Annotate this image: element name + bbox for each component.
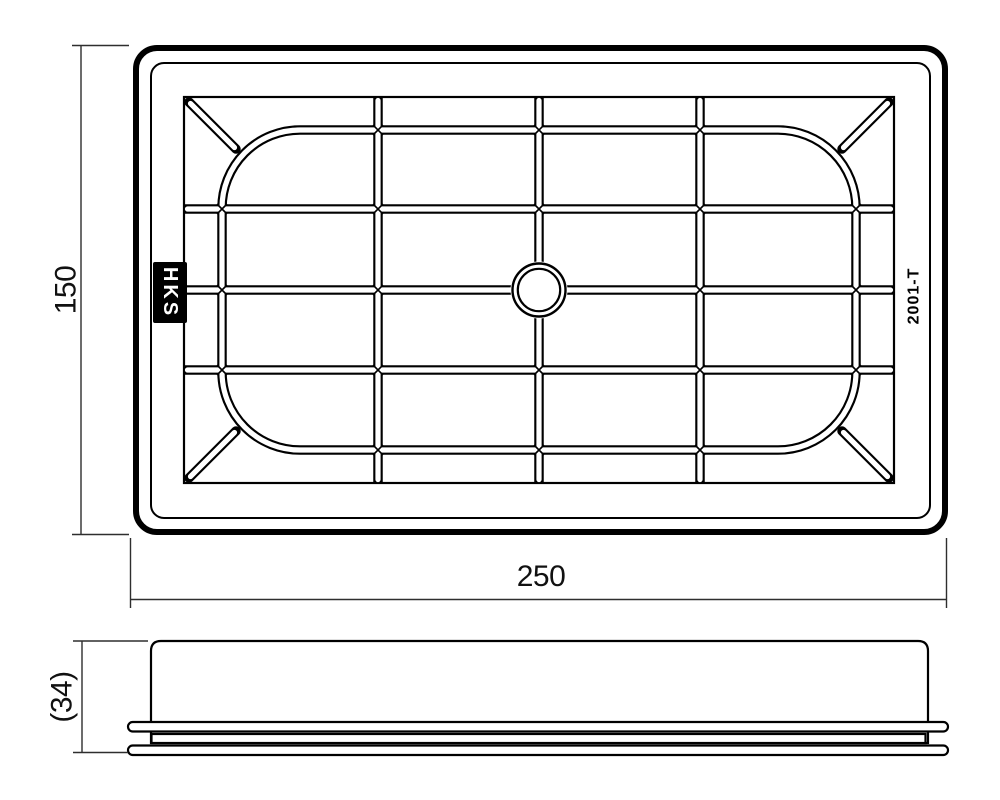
logo-text: HKS — [159, 267, 181, 318]
center-hole-inner-ring — [518, 269, 560, 311]
dimension-width-label: 250 — [517, 560, 566, 593]
part-number-text: 2001-T — [906, 268, 923, 325]
logo-badge: HKS — [153, 262, 187, 323]
dimension-depth-lines — [73, 641, 148, 753]
dimension-height-label: 150 — [50, 266, 83, 315]
center-hole — [511, 262, 568, 319]
dimension-height: 150 — [50, 45, 130, 535]
side-view — [128, 641, 948, 755]
dimension-depth: (34) — [46, 641, 149, 753]
side-gasket-middle-layer — [152, 734, 926, 743]
top-view: HKS 2001-T — [136, 48, 945, 532]
drawing-canvas: HKS 2001-T 150 250 — [0, 0, 1000, 800]
technical-drawing: HKS 2001-T 150 250 — [0, 0, 1000, 800]
side-flange-bottom-layer — [128, 746, 948, 756]
dimension-width: 250 — [131, 538, 947, 608]
side-flange-top-layer — [128, 722, 948, 732]
dimension-depth-label: (34) — [46, 671, 79, 722]
